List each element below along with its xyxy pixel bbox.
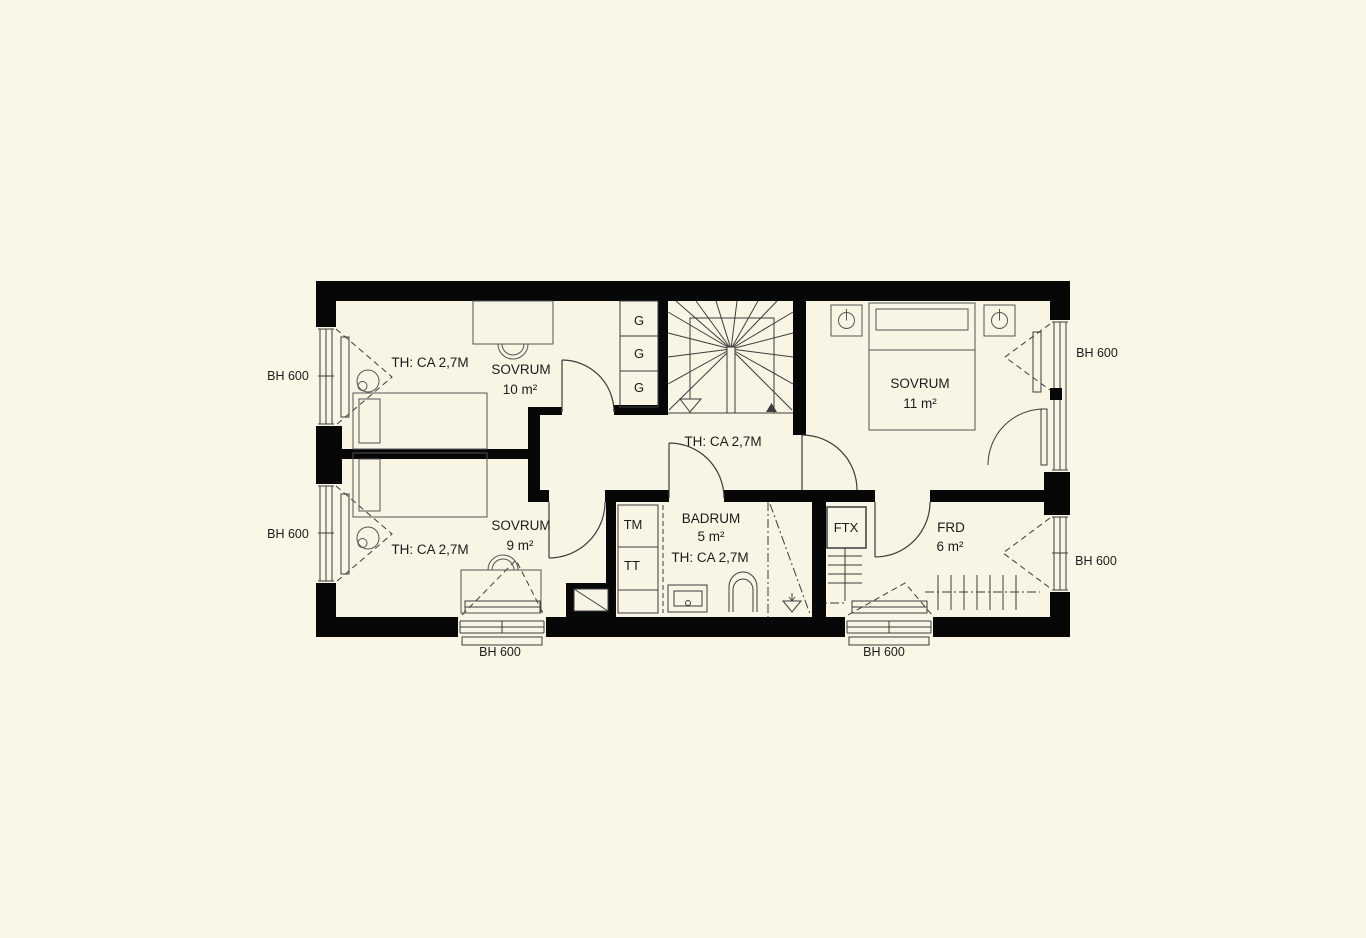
label-ftx: FTX (834, 520, 859, 535)
label-name-frd: FRD (937, 520, 965, 535)
label-bh-left-top: BH 600 (267, 369, 309, 383)
label-wardrobe-1: G (634, 313, 644, 328)
label-tm: TM (624, 517, 643, 532)
label-area-sovrum10: 10 m² (503, 382, 538, 397)
floor-plan: TH: CA 2,7M SOVRUM 10 m² SOVRUM 9 m² TH:… (0, 0, 1366, 938)
label-bh-bottom-right: BH 600 (863, 645, 905, 659)
label-tt: TT (624, 558, 640, 573)
label-area-sovrum11: 11 m² (903, 396, 937, 411)
label-name-sovrum9: SOVRUM (491, 518, 550, 533)
label-bh-right-bottom: BH 600 (1075, 554, 1117, 568)
label-name-sovrum10: SOVRUM (491, 362, 550, 377)
label-bh-bottom-left: BH 600 (479, 645, 521, 659)
label-ceiling-sovrum10: TH: CA 2,7M (391, 355, 468, 370)
label-area-badrum: 5 m² (698, 529, 726, 544)
label-bh-right-top: BH 600 (1076, 346, 1118, 360)
label-bh-left-bottom: BH 600 (267, 527, 309, 541)
duct-shaft (574, 589, 608, 611)
label-wardrobe-2: G (634, 346, 644, 361)
label-name-sovrum11: SOVRUM (890, 376, 949, 391)
label-wardrobe-3: G (634, 380, 644, 395)
label-area-frd: 6 m² (937, 539, 965, 554)
label-ceiling-hall: TH: CA 2,7M (684, 434, 761, 449)
label-ceiling-badrum: TH: CA 2,7M (671, 550, 748, 565)
label-ceiling-sovrum9: TH: CA 2,7M (391, 542, 468, 557)
label-name-badrum: BADRUM (682, 511, 741, 526)
label-area-sovrum9: 9 m² (507, 538, 535, 553)
